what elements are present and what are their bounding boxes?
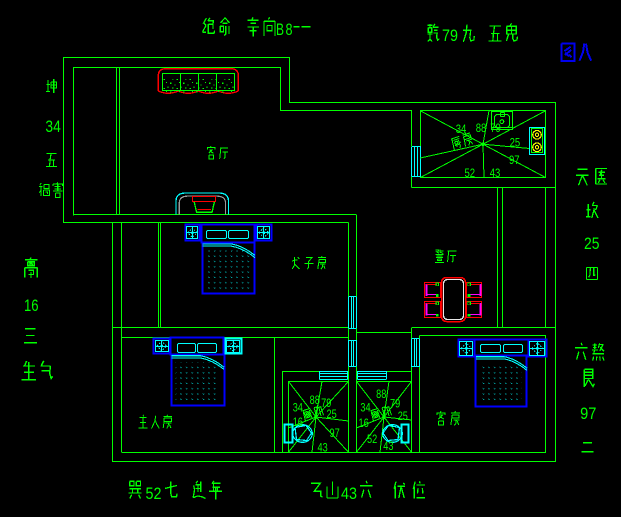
svg-text:34: 34 [293, 401, 304, 415]
svg-text:97: 97 [330, 426, 340, 440]
svg-text:88: 88 [376, 387, 387, 401]
svg-text:25: 25 [510, 136, 521, 150]
svg-text:8: 8 [286, 21, 293, 39]
svg-text:88: 88 [476, 121, 487, 135]
svg-text:34: 34 [456, 122, 467, 136]
svg-text:25: 25 [327, 407, 338, 421]
svg-text:34: 34 [45, 117, 60, 136]
svg-text:43: 43 [383, 439, 394, 453]
svg-text:B: B [276, 21, 284, 39]
svg-text:52: 52 [465, 166, 476, 180]
svg-text:43: 43 [341, 484, 357, 503]
svg-text:79: 79 [490, 121, 501, 135]
svg-text:43: 43 [490, 166, 501, 180]
svg-text:52: 52 [367, 432, 377, 446]
svg-text:97: 97 [509, 153, 520, 167]
svg-text:25: 25 [398, 409, 409, 423]
svg-text:34: 34 [360, 401, 371, 415]
svg-text:97: 97 [580, 404, 596, 423]
svg-text:88: 88 [310, 393, 321, 407]
svg-text:52: 52 [146, 484, 162, 503]
svg-text:79: 79 [442, 26, 458, 45]
svg-text:16: 16 [24, 296, 39, 315]
svg-text:16: 16 [293, 415, 304, 429]
svg-text:25: 25 [584, 234, 600, 253]
svg-text:43: 43 [318, 440, 329, 454]
svg-text:16: 16 [359, 416, 370, 430]
